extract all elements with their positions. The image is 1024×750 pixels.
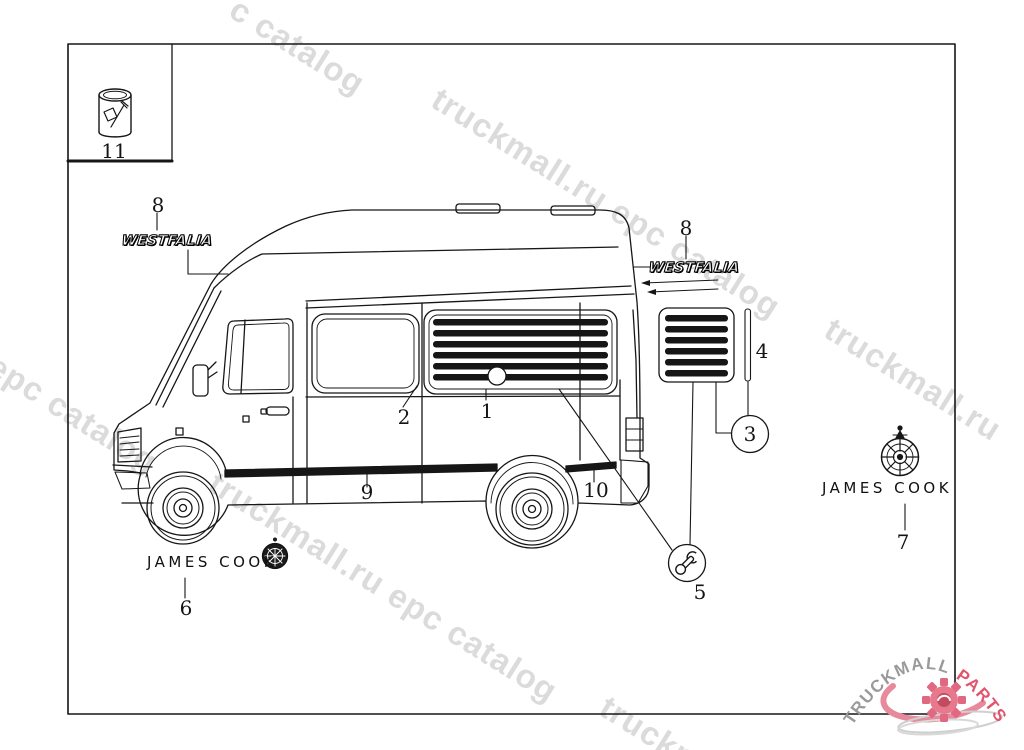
diagram-canvas: TRUCKMALL PARTS xyxy=(0,0,1024,750)
rear-wheel xyxy=(496,473,568,545)
trim-strip-part xyxy=(745,309,751,381)
van-drawing xyxy=(113,204,649,548)
callout-3[interactable]: 3 xyxy=(744,424,757,444)
callout-5[interactable]: 5 xyxy=(694,582,707,602)
callout-4[interactable]: 4 xyxy=(756,341,769,361)
callout-10[interactable]: 10 xyxy=(583,480,608,500)
callout-2[interactable]: 2 xyxy=(398,407,411,427)
callout-7[interactable]: 7 xyxy=(897,532,910,552)
callout-1[interactable]: 1 xyxy=(481,401,494,421)
paint-can-icon xyxy=(99,89,131,137)
callout-8-right[interactable]: 8 xyxy=(680,218,693,238)
side-window-part xyxy=(312,314,419,393)
westfalia-decal-right: WESTFALIA xyxy=(648,260,741,276)
vent-grille-part xyxy=(424,310,617,394)
james-cook-text-right: JAMES COOK xyxy=(822,479,952,497)
callout-11[interactable]: 11 xyxy=(101,141,126,161)
leader-lines xyxy=(157,213,905,598)
callout-6[interactable]: 6 xyxy=(180,598,193,618)
james-cook-text-left: JAMES COOK xyxy=(147,553,277,571)
mounting-arrows xyxy=(641,280,718,295)
stripe-part xyxy=(225,462,616,477)
callout-9[interactable]: 9 xyxy=(361,482,374,502)
truckmall-logo: TRUCKMALL PARTS xyxy=(840,654,1011,737)
westfalia-decal-left: WESTFALIA xyxy=(121,233,214,249)
front-wheel xyxy=(147,472,219,544)
compass-logo-icon xyxy=(882,426,919,476)
spare-grille-part xyxy=(659,308,734,382)
callout-8-left[interactable]: 8 xyxy=(152,195,165,215)
parts-diagram-page: c catalog truckmall.ru epc catalog truck… xyxy=(0,0,1024,750)
